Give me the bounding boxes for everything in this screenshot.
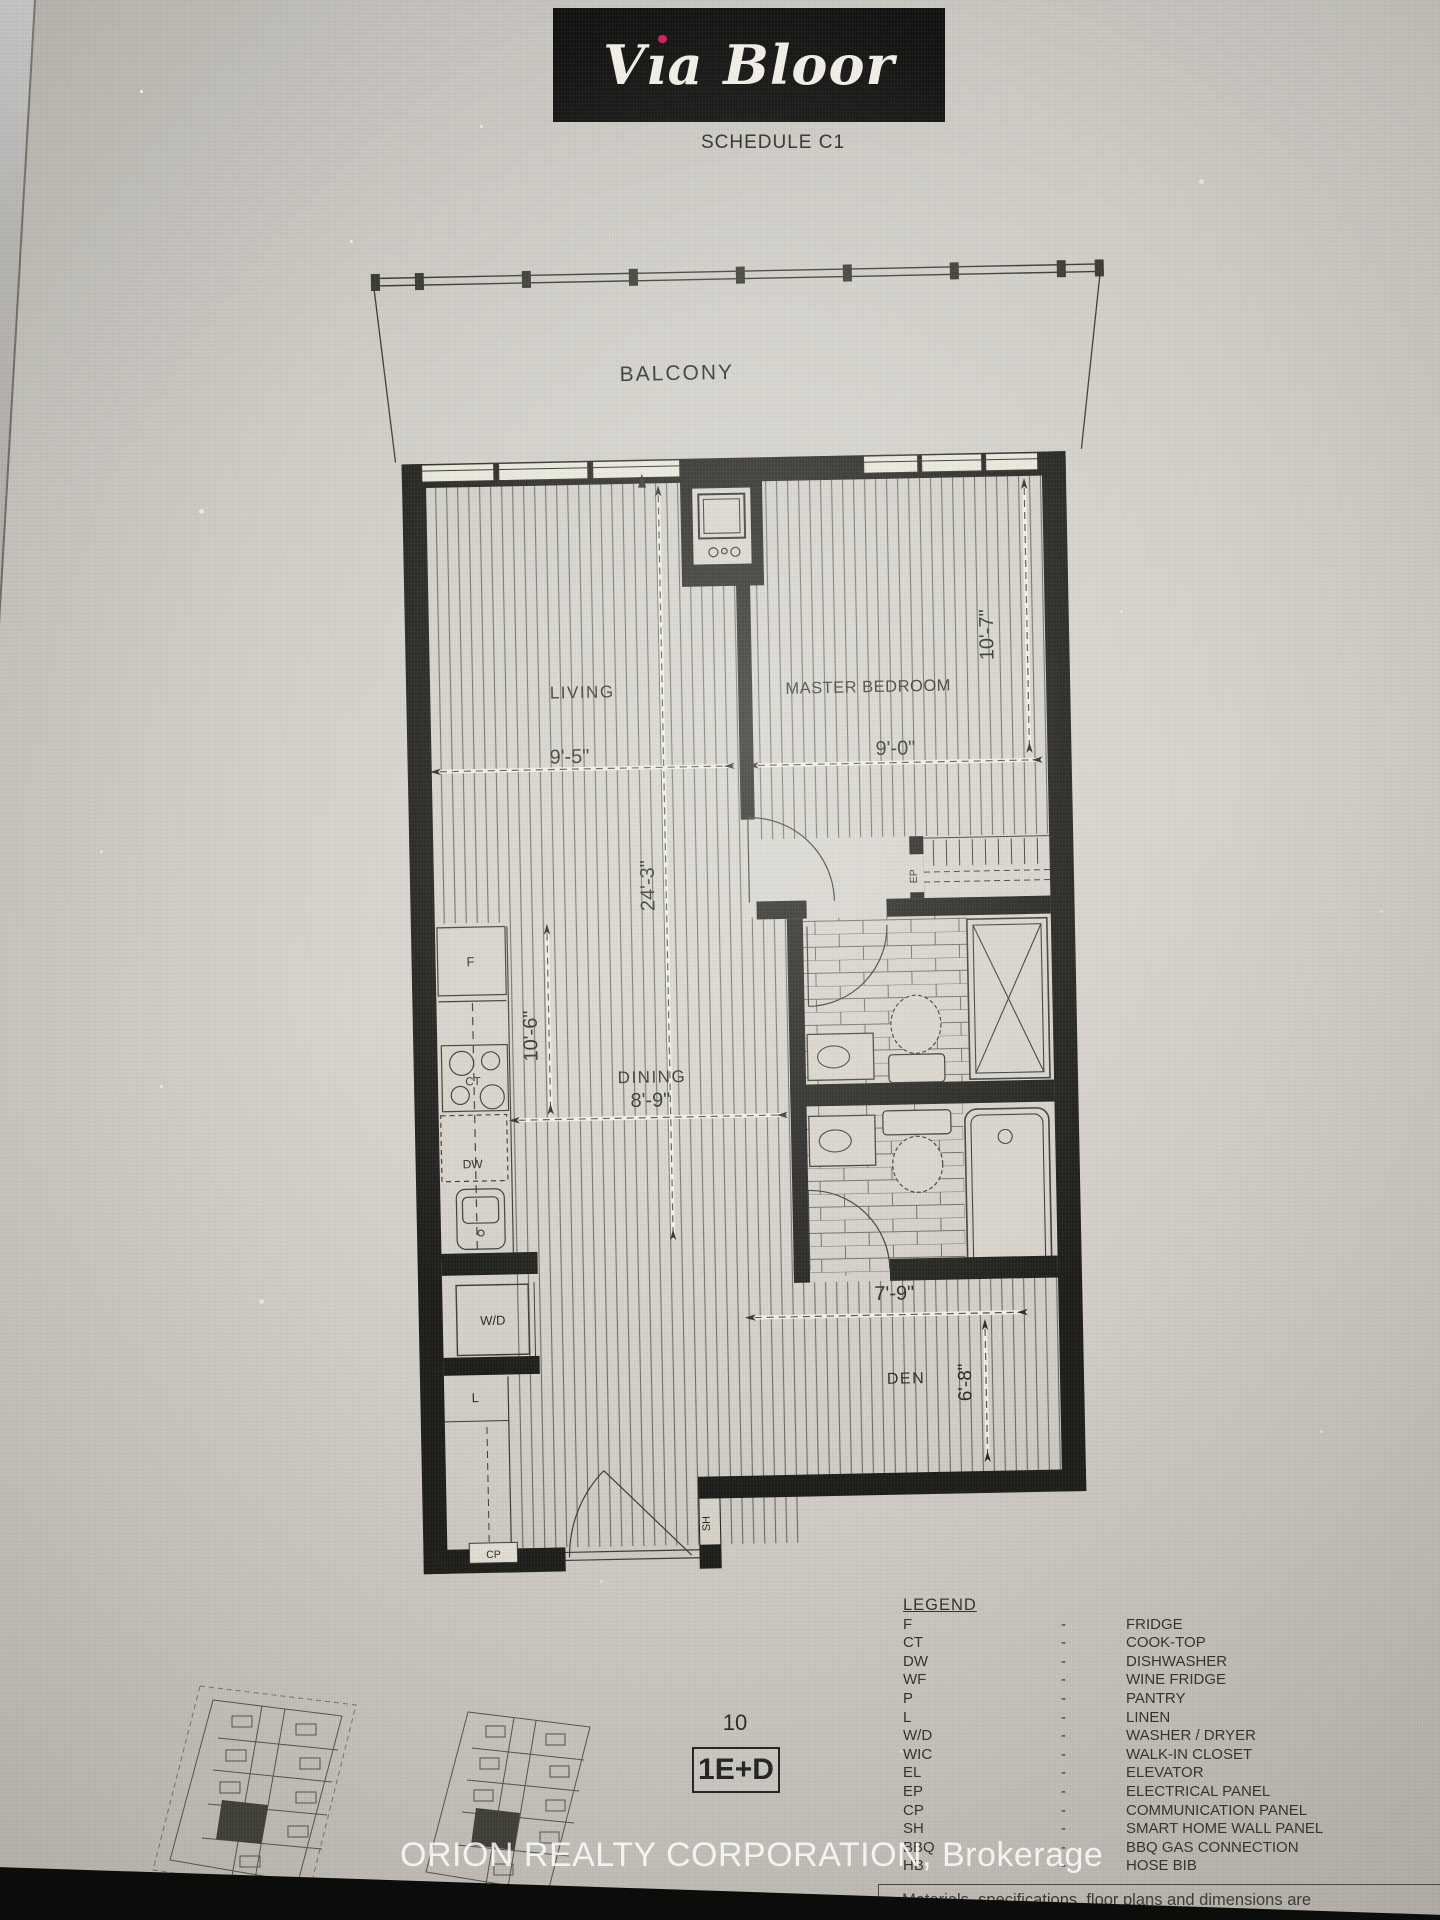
balcony bbox=[371, 259, 1108, 463]
dim-dining-width: 8'-9" bbox=[630, 1089, 670, 1112]
dim-master-depth: 10'-7" bbox=[976, 609, 999, 660]
unit-plan: BALCONY LIVING MASTER BEDROOM DINING DEN… bbox=[371, 259, 1130, 1574]
master-windows bbox=[864, 453, 1038, 473]
legend-row: DW-DISHWASHER bbox=[903, 1653, 1333, 1672]
legend: LEGEND F-FRIDGE CT-COOK-TOP DW-DISHWASHE… bbox=[903, 1596, 1333, 1876]
dining-label: DINING bbox=[617, 1067, 686, 1087]
legend-row: EL-ELEVATOR bbox=[903, 1764, 1333, 1783]
linen-closet-dash bbox=[487, 1427, 489, 1543]
legend-row: CP-COMMUNICATION PANEL bbox=[903, 1802, 1333, 1821]
key-plan-1-highlight-unit bbox=[216, 1800, 268, 1844]
dim-den-width: 7'-9" bbox=[874, 1282, 914, 1305]
electrical-panel-label: EP bbox=[908, 869, 920, 883]
photographed-floorplan-page: Vıa Bloor SCHEDULE C1 bbox=[0, 0, 1440, 1920]
legend-row: EP-ELECTRICAL PANEL bbox=[903, 1783, 1333, 1802]
disclaimer-box-top bbox=[878, 1884, 1440, 1885]
legend-row: WIC-WALK-IN CLOSET bbox=[903, 1746, 1333, 1765]
balcony-label: BALCONY bbox=[619, 361, 734, 386]
legend-title: LEGEND bbox=[903, 1596, 977, 1615]
dishwasher bbox=[441, 1115, 508, 1182]
unit-level: 10 bbox=[705, 1710, 765, 1736]
smart-home-label: SH bbox=[701, 1516, 713, 1532]
cooktop-label: CT bbox=[465, 1076, 481, 1088]
fridge-label: F bbox=[466, 954, 474, 969]
kitchen bbox=[437, 926, 514, 1253]
master-bedroom-label: MASTER BEDROOM bbox=[785, 677, 951, 698]
dim-den-depth: 6'-8" bbox=[955, 1363, 977, 1401]
brokerage-watermark: ORION REALTY CORPORATION, Brokerage bbox=[400, 1836, 1100, 1875]
legend-row: F-FRIDGE bbox=[903, 1616, 1333, 1635]
communication-panel-label: CP bbox=[486, 1549, 501, 1561]
legend-row: CT-COOK-TOP bbox=[903, 1634, 1333, 1653]
ensuite-toilet bbox=[887, 995, 945, 1083]
legend-row: L-LINEN bbox=[903, 1709, 1333, 1728]
media-niche bbox=[680, 473, 764, 587]
dim-master-width: 9'-0" bbox=[875, 737, 915, 760]
dim-kitchen-depth: 10'-6" bbox=[520, 1010, 543, 1061]
dim-living-width: 9'-5" bbox=[549, 746, 589, 769]
washer-dryer-label: W/D bbox=[480, 1313, 506, 1329]
balcony-rail-posts bbox=[371, 259, 1104, 291]
living-label: LIVING bbox=[550, 682, 615, 702]
legend-row: P-PANTRY bbox=[903, 1690, 1333, 1709]
linen-label: L bbox=[472, 1390, 480, 1405]
dim-overall-depth: 24'-3" bbox=[637, 860, 660, 911]
key-plan-1 bbox=[153, 1686, 356, 1893]
master-closet bbox=[923, 836, 1050, 883]
den-label: DEN bbox=[887, 1370, 926, 1388]
unit-model-badge: 1E+D bbox=[692, 1747, 780, 1793]
shower bbox=[967, 918, 1050, 1080]
bathtub bbox=[965, 1108, 1052, 1272]
dishwasher-label: DW bbox=[463, 1157, 484, 1171]
legend-row: W/D-WASHER / DRYER bbox=[903, 1727, 1333, 1746]
legend-row: WF-WINE FRIDGE bbox=[903, 1671, 1333, 1690]
